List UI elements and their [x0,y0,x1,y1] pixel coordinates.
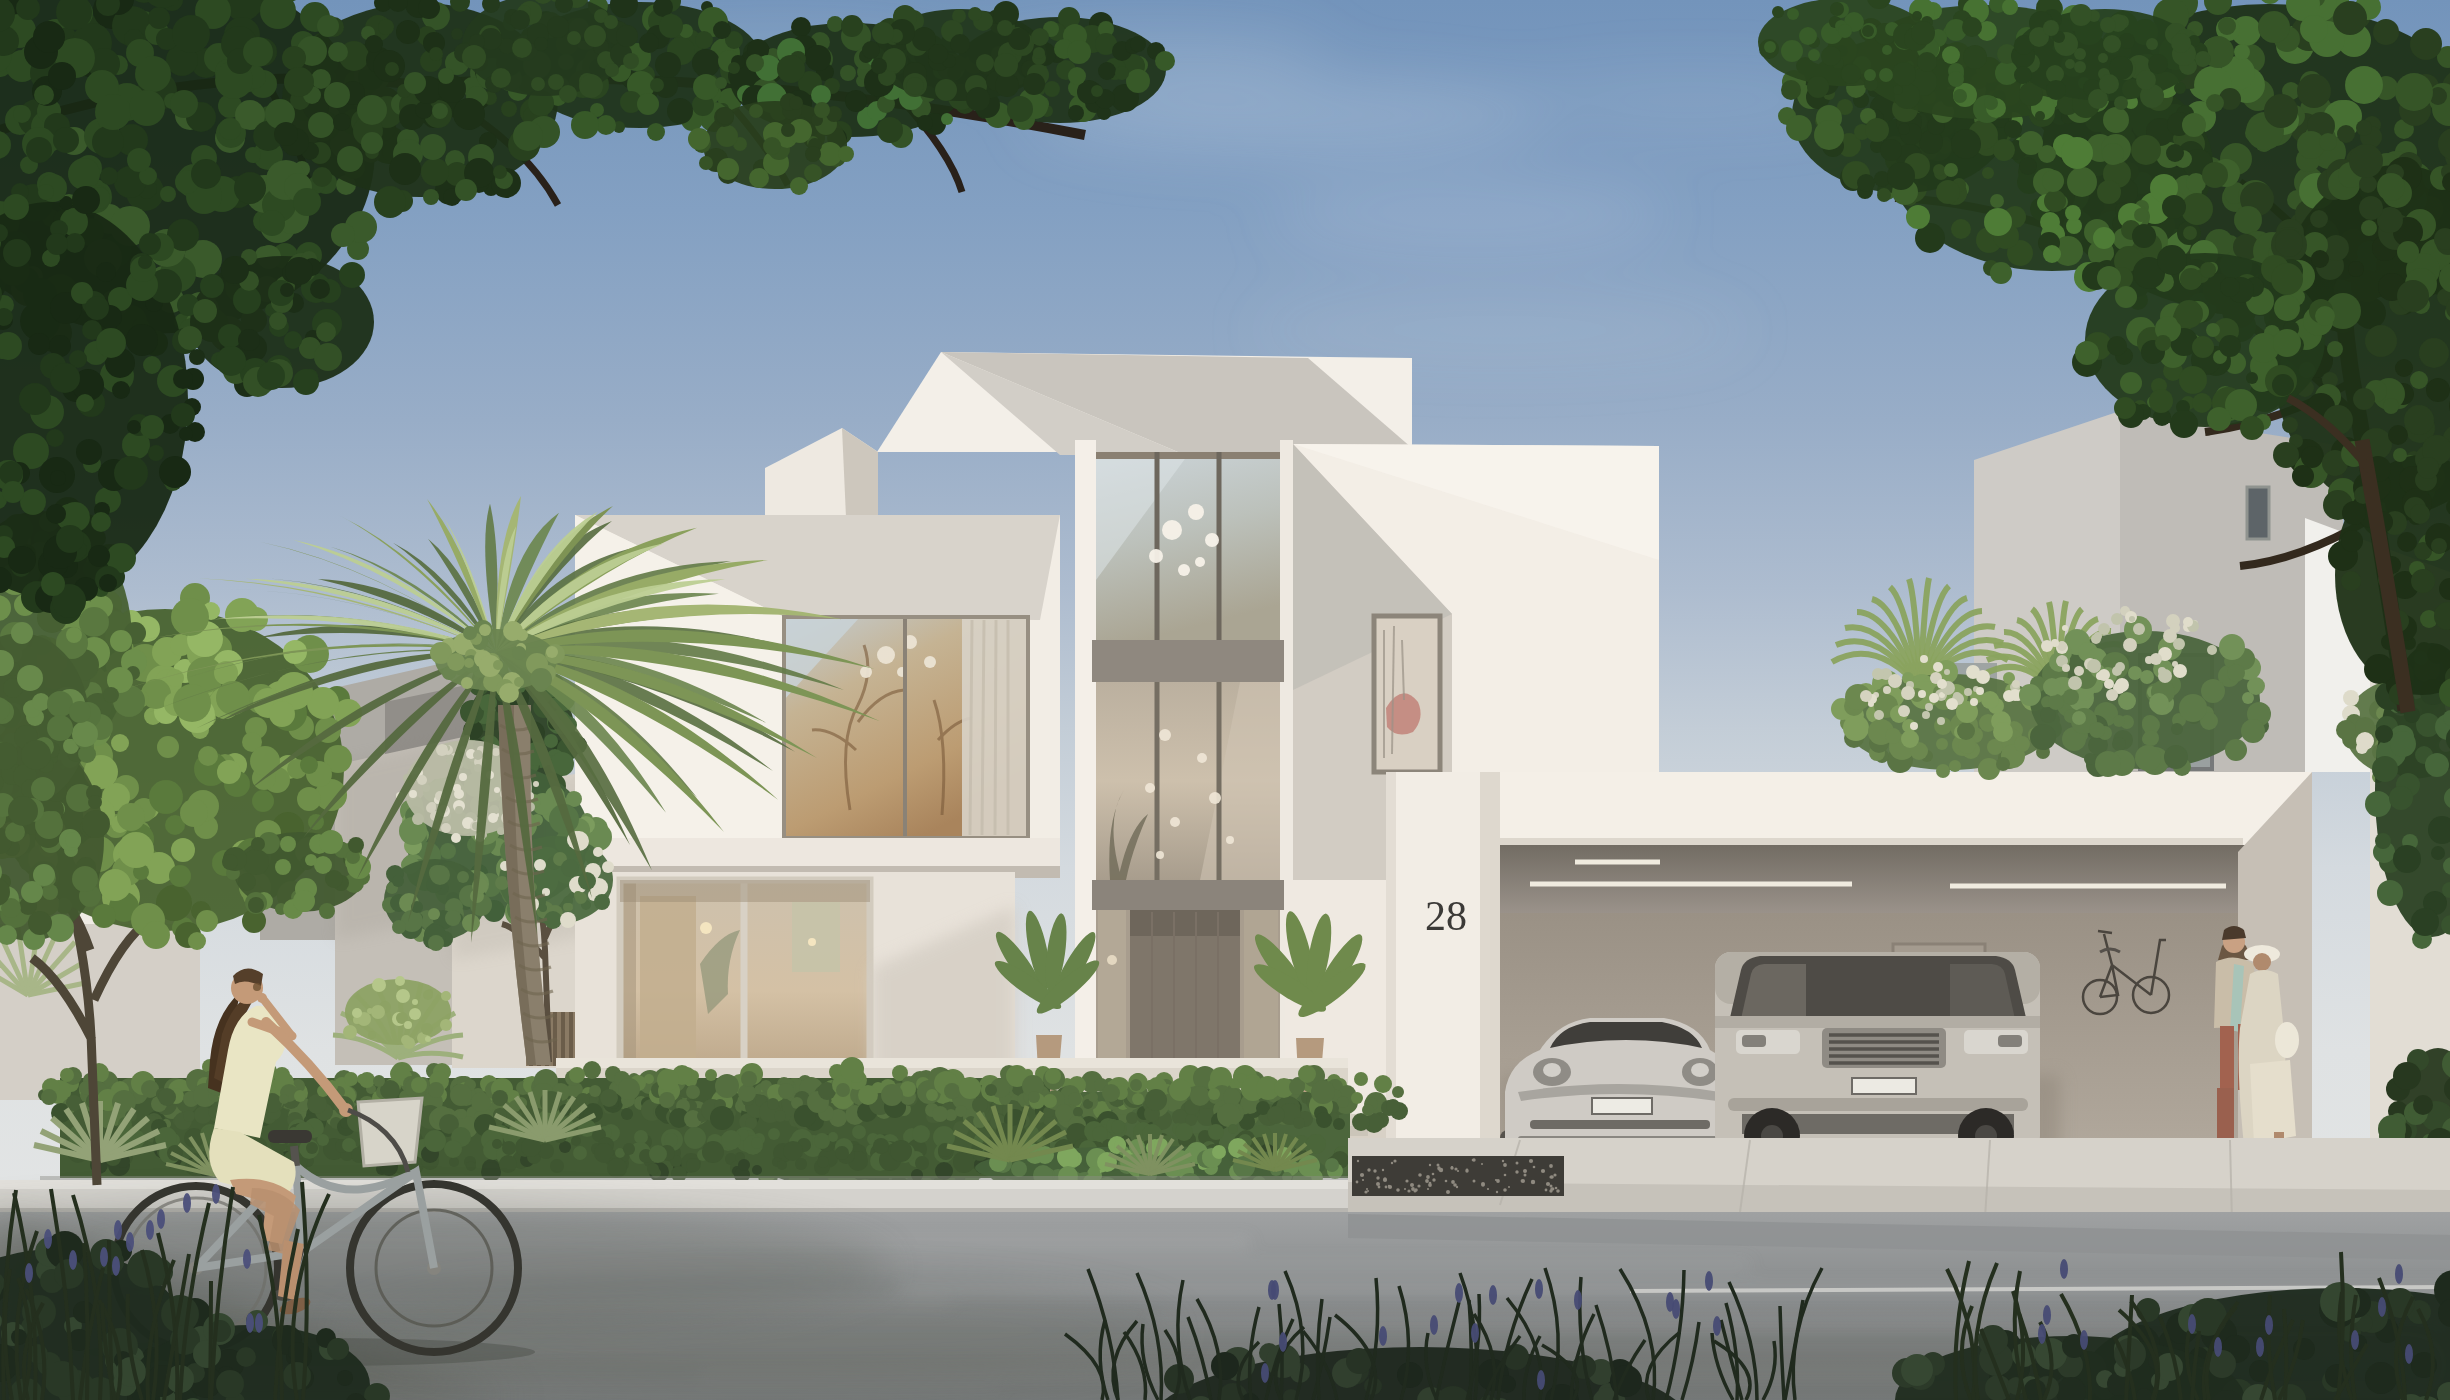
svg-text:28: 28 [1425,893,1467,939]
